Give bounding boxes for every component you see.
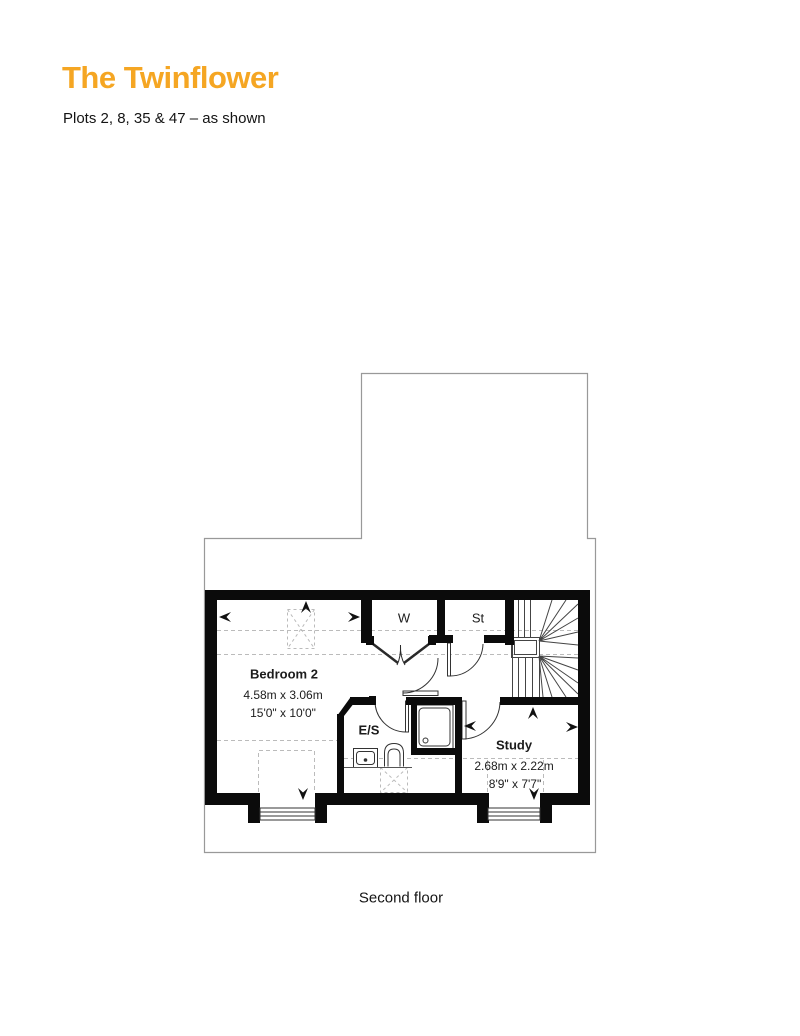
dormer-windows (260, 808, 540, 820)
room-dims-imperial-bedroom2: 15'0" x 10'0" (250, 706, 316, 720)
bedroom-door (403, 658, 438, 696)
room-dims-metric-study: 2.68m x 2.22m (474, 759, 553, 773)
sink (354, 749, 378, 768)
stairs (512, 600, 579, 697)
study-door (462, 701, 500, 739)
floor-plan-drawing (0, 0, 800, 1036)
slope-arrow-up (301, 601, 311, 613)
study-dormer-window (488, 808, 540, 820)
room-dims-imperial-study: 8'9" x 7'7" (489, 777, 541, 791)
ensuite-door (375, 701, 409, 732)
room-label-bedroom2: Bedroom 2 (250, 667, 318, 682)
floor-caption: Second floor (359, 890, 443, 907)
room-label-study: Study (496, 738, 532, 753)
room-label-ensuite: E/S (359, 723, 380, 738)
slope-arrow-down (298, 788, 308, 800)
room-dims-metric-bedroom2: 4.58m x 3.06m (243, 688, 322, 702)
room-label-wardrobe: W (398, 611, 410, 626)
room-label-store: St (472, 611, 484, 626)
loft-hatch (288, 610, 315, 649)
slope-arrow-left (219, 612, 231, 622)
bedroom-dormer-window (260, 808, 315, 820)
shower (416, 705, 453, 749)
page-title: The Twinflower (62, 60, 278, 96)
page-subtitle: Plots 2, 8, 35 & 47 – as shown (63, 110, 266, 127)
slope-arrow-up (528, 707, 538, 719)
store-door (448, 643, 484, 676)
slope-arrow-right (566, 722, 578, 732)
toilet (385, 744, 404, 767)
slope-arrow-right (348, 612, 360, 622)
low-headroom-hatch (381, 768, 408, 793)
